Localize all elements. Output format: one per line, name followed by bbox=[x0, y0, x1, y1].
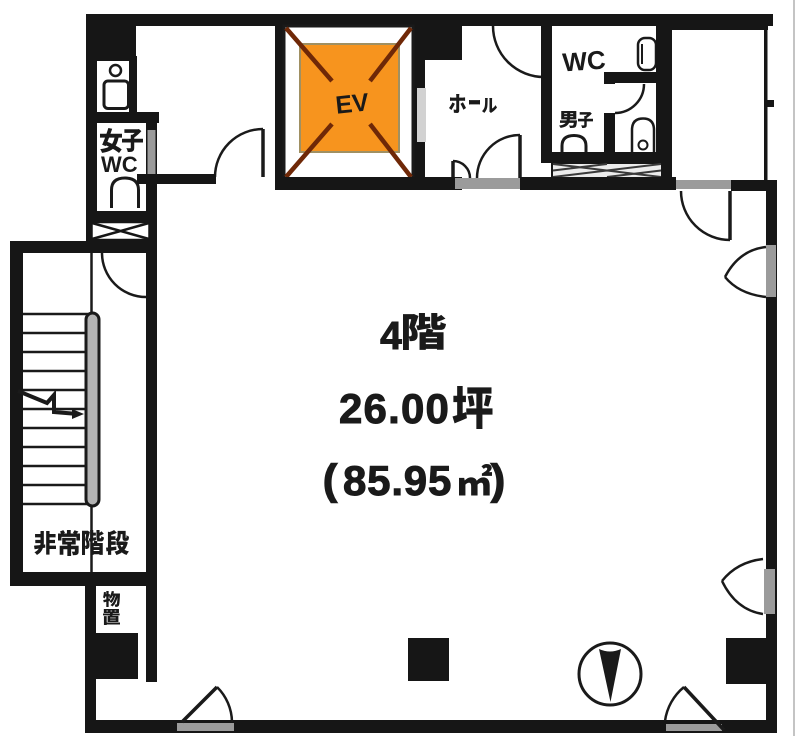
svg-text:): ) bbox=[491, 456, 505, 503]
svg-text:(: ( bbox=[323, 456, 337, 503]
svg-text:26.00: 26.00 bbox=[339, 385, 450, 432]
svg-text:85.95: 85.95 bbox=[343, 457, 452, 504]
svg-text:WC: WC bbox=[101, 152, 138, 177]
svg-text:WC: WC bbox=[561, 45, 607, 78]
svg-text:4: 4 bbox=[380, 315, 402, 358]
svg-text:EV: EV bbox=[334, 88, 370, 119]
